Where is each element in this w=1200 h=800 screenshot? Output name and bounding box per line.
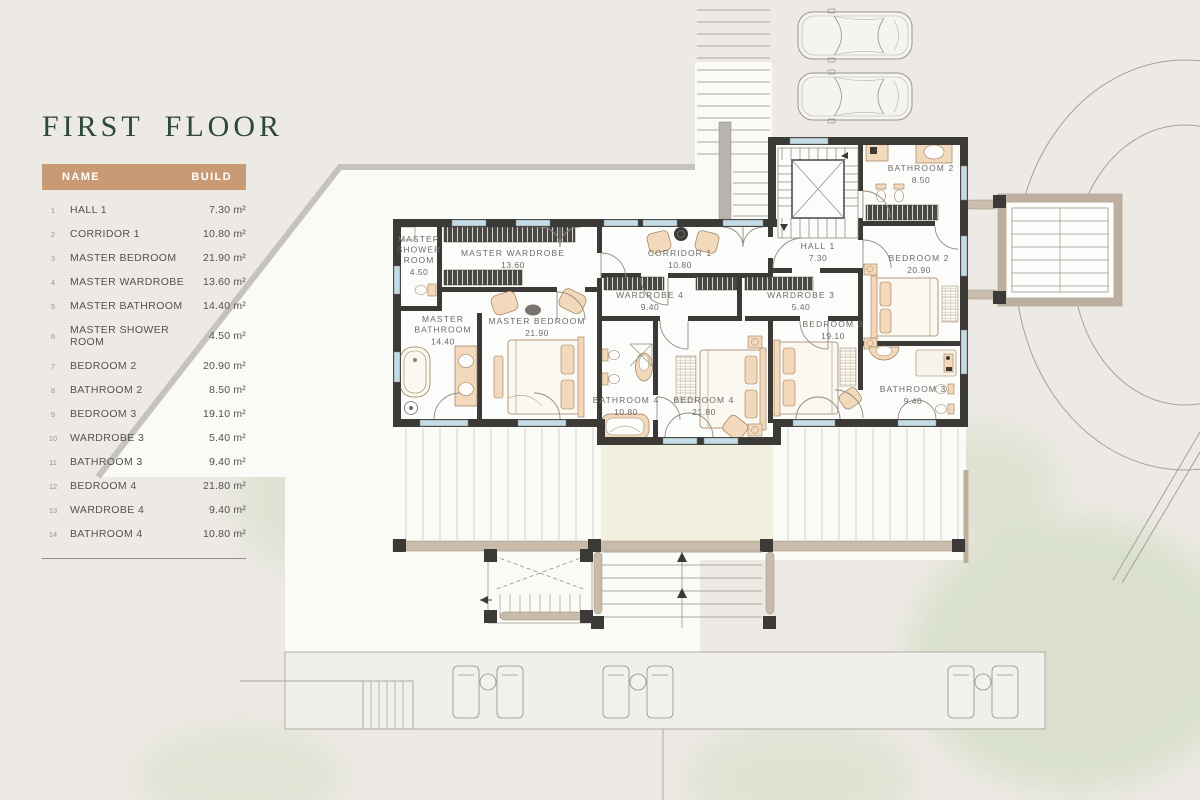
row-number: 1 <box>42 206 70 215</box>
row-room-name: MASTER SHOWER ROOM <box>70 324 192 348</box>
row-room-area: 4.50 m² <box>192 330 246 342</box>
row-number: 13 <box>42 506 70 515</box>
table-row: 5MASTER BATHROOM14.40 m² <box>42 294 246 318</box>
car-2 <box>798 70 912 123</box>
table-row: 3MASTER BEDROOM21.90 m² <box>42 246 246 270</box>
row-room-name: BATHROOM 4 <box>70 528 192 540</box>
bedroom3-bed <box>774 340 838 416</box>
area-table-rows: 1HALL 17.30 m²2CORRIDOR 110.80 m²3MASTER… <box>42 198 246 546</box>
row-room-area: 21.80 m² <box>192 480 246 492</box>
pool-deck <box>240 652 1045 800</box>
table-row: 2CORRIDOR 110.80 m² <box>42 222 246 246</box>
row-number: 10 <box>42 434 70 443</box>
table-row: 11BATHROOM 39.40 m² <box>42 450 246 474</box>
row-room-name: MASTER BATHROOM <box>70 300 192 312</box>
row-number: 4 <box>42 278 70 287</box>
terrace-cream-area <box>601 445 773 549</box>
row-number: 9 <box>42 410 70 419</box>
row-room-name: HALL 1 <box>70 204 192 216</box>
bedroom3-rug <box>840 348 856 386</box>
row-room-name: WARDROBE 4 <box>70 504 192 516</box>
row-room-area: 8.50 m² <box>192 384 246 396</box>
table-row: 10WARDROBE 35.40 m² <box>42 426 246 450</box>
row-number: 14 <box>42 530 70 539</box>
row-room-area: 9.40 m² <box>192 504 246 516</box>
row-number: 2 <box>42 230 70 239</box>
table-row: 8BATHROOM 28.50 m² <box>42 378 246 402</box>
table-header-build: BUILD <box>191 171 232 183</box>
row-room-name: WARDROBE 3 <box>70 432 192 444</box>
table-row: 7BEDROOM 220.90 m² <box>42 354 246 378</box>
row-room-name: BEDROOM 4 <box>70 480 192 492</box>
row-number: 12 <box>42 482 70 491</box>
row-room-area: 14.40 m² <box>192 300 246 312</box>
row-room-area: 13.60 m² <box>192 276 246 288</box>
row-room-name: MASTER BEDROOM <box>70 252 192 264</box>
row-number: 11 <box>42 458 70 467</box>
car-1 <box>798 9 912 62</box>
row-room-area: 7.30 m² <box>192 204 246 216</box>
row-number: 8 <box>42 386 70 395</box>
bedroom2-rug <box>942 286 958 322</box>
table-row: 4MASTER WARDROBE13.60 m² <box>42 270 246 294</box>
row-room-name: BEDROOM 2 <box>70 360 192 372</box>
row-room-name: MASTER WARDROBE <box>70 276 192 288</box>
table-row: 13WARDROBE 49.40 m² <box>42 498 246 522</box>
row-room-name: BATHROOM 3 <box>70 456 192 468</box>
terrace-beam <box>393 541 965 551</box>
row-room-area: 21.90 m² <box>192 252 246 264</box>
row-room-area: 19.10 m² <box>192 408 246 420</box>
table-divider <box>42 558 246 559</box>
table-row: 6MASTER SHOWER ROOM4.50 m² <box>42 318 246 354</box>
bedroom2-bed <box>871 276 938 338</box>
page-title: FIRST FLOOR <box>42 110 246 144</box>
balcony-east <box>966 195 1118 304</box>
terrace-stairs-left <box>480 549 593 623</box>
table-row: 1HALL 17.30 m² <box>42 198 246 222</box>
row-room-name: BATHROOM 2 <box>70 384 192 396</box>
row-room-area: 10.80 m² <box>192 528 246 540</box>
row-room-area: 5.40 m² <box>192 432 246 444</box>
deck-steps <box>363 681 413 729</box>
row-room-name: CORRIDOR 1 <box>70 228 192 240</box>
table-header: NAME BUILD <box>42 164 246 190</box>
table-header-name: NAME <box>62 171 100 183</box>
row-number: 6 <box>42 332 70 341</box>
row-room-area: 9.40 m² <box>192 456 246 468</box>
table-row: 9BEDROOM 319.10 m² <box>42 402 246 426</box>
table-row: 14BATHROOM 410.80 m² <box>42 522 246 546</box>
row-room-name: BEDROOM 3 <box>70 408 192 420</box>
master-vanity <box>455 346 477 406</box>
row-room-area: 10.80 m² <box>192 228 246 240</box>
row-number: 3 <box>42 254 70 263</box>
row-number: 5 <box>42 302 70 311</box>
table-row: 12BEDROOM 421.80 m² <box>42 474 246 498</box>
row-number: 7 <box>42 362 70 371</box>
info-panel: FIRST FLOOR NAME BUILD 1HALL 17.30 m²2CO… <box>42 110 246 559</box>
row-room-area: 20.90 m² <box>192 360 246 372</box>
master-bathtub <box>400 347 430 397</box>
